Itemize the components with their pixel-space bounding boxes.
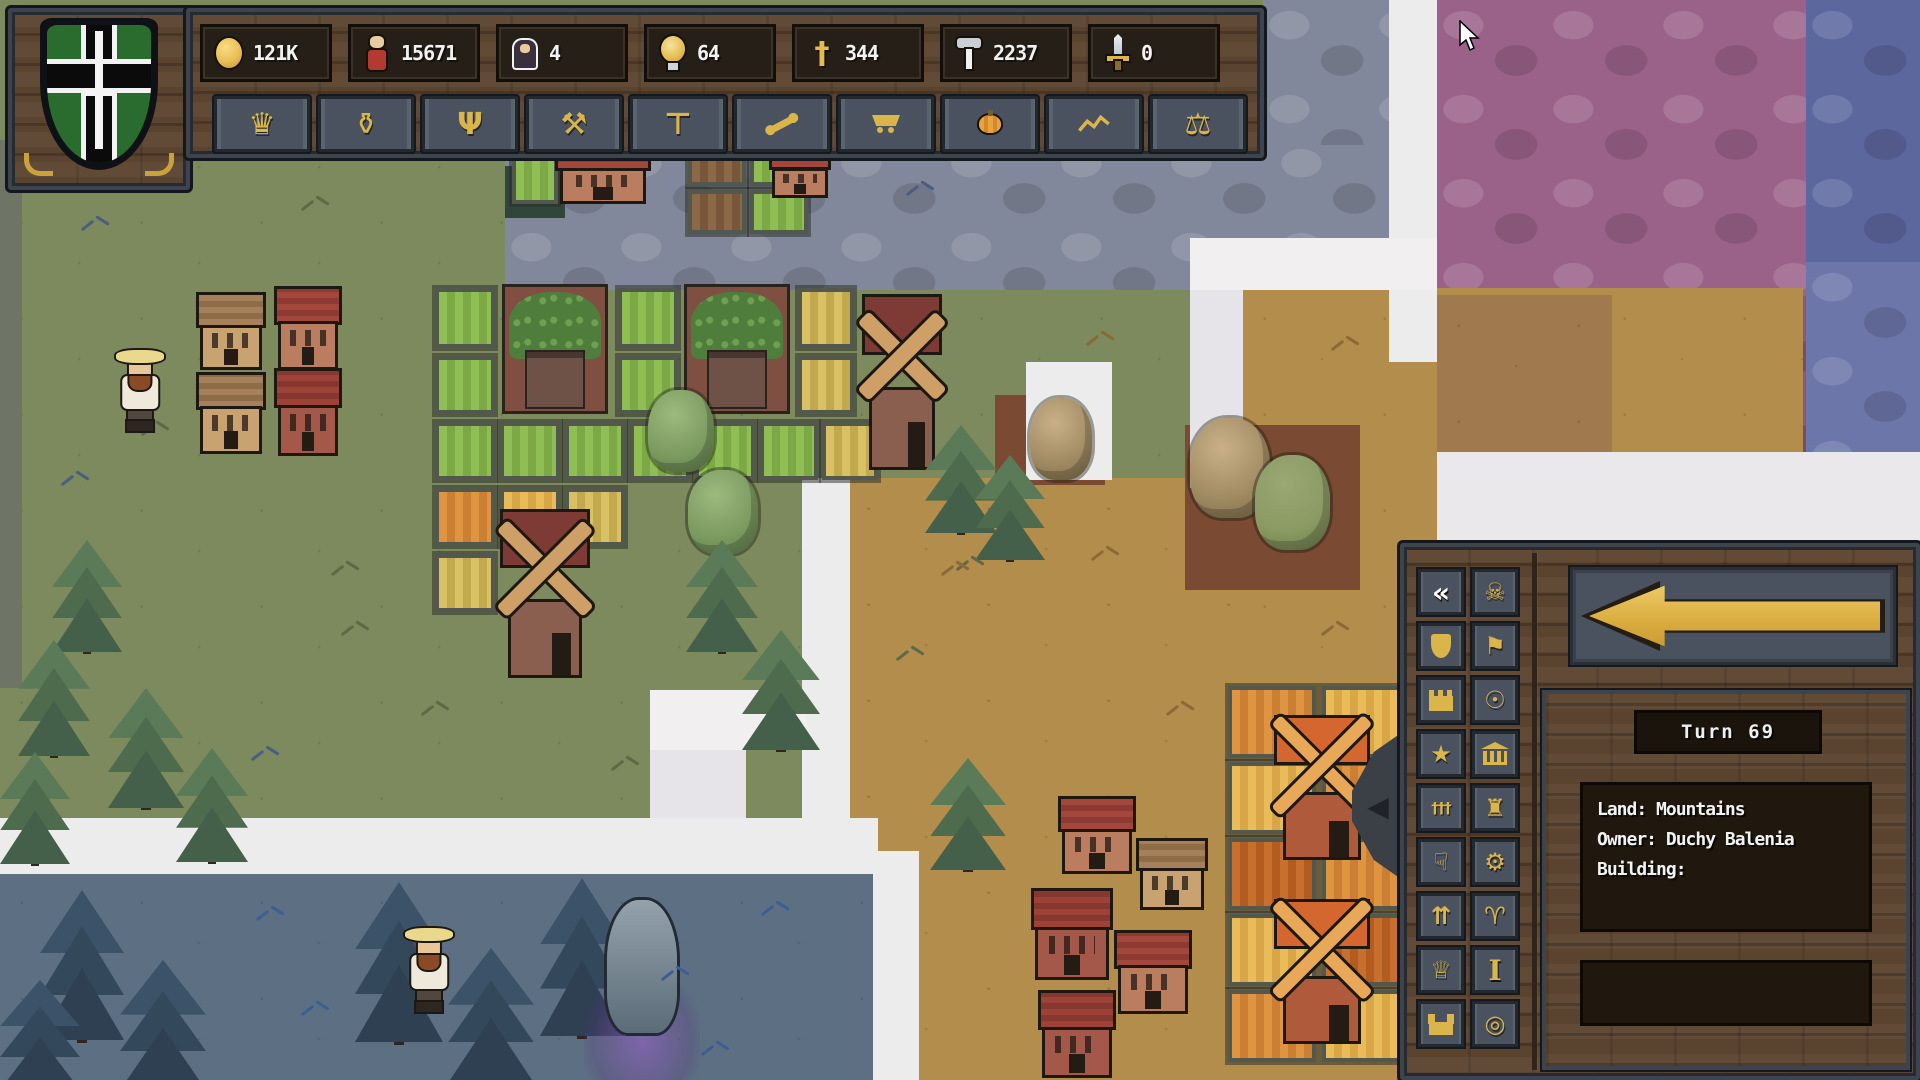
tool-button-graveyard[interactable]: ††† xyxy=(1418,785,1464,831)
plot-sprite-b[interactable] xyxy=(688,190,746,234)
tile-info-secondary-box xyxy=(1580,960,1872,1026)
resource-population: 15671 xyxy=(348,24,480,82)
figure-star-icon: ★ xyxy=(1424,734,1458,774)
temple-icon xyxy=(1478,734,1512,774)
plot-sprite-y[interactable] xyxy=(798,356,854,414)
growth-arrows-icon: ⇈ xyxy=(1424,896,1458,936)
gold-coin-icon xyxy=(213,33,247,73)
tool-button-coin-mark[interactable]: ☉ xyxy=(1472,677,1518,723)
left-arrow-icon xyxy=(1589,583,1880,649)
wall-icon xyxy=(1424,680,1458,720)
tool-button-temple[interactable] xyxy=(1472,731,1518,777)
menu-button-pumpkin[interactable] xyxy=(942,96,1038,152)
resource-row: 121K15671464†34422370 xyxy=(200,24,1220,82)
tool-button-ram[interactable]: ♈ xyxy=(1472,893,1518,939)
tool-button-banner[interactable]: ⚑ xyxy=(1472,623,1518,669)
resource-faith: †344 xyxy=(792,24,924,82)
tuft-sprite-b xyxy=(250,745,280,763)
plot-sprite-g[interactable] xyxy=(500,422,560,480)
side-panel: «☠⚑☉★†††♜☟⚙⇈♈♕I◎ Turn 69 Land: Mountains… xyxy=(1400,543,1920,1080)
tuft-sprite-n xyxy=(660,965,690,983)
pine-sprite-g xyxy=(108,688,184,808)
house-sprite-red3[interactable] xyxy=(1042,990,1112,1078)
house-sprite-red3[interactable] xyxy=(1035,888,1109,980)
menu-button-chart[interactable] xyxy=(1046,96,1142,152)
tool-button-castle[interactable] xyxy=(1418,1001,1464,1047)
pine-sprite-g xyxy=(975,455,1045,560)
mill-sprite-o[interactable] xyxy=(1268,896,1376,1044)
villager-icon xyxy=(361,33,395,73)
tuft-sprite-g xyxy=(340,620,370,638)
resource-ideas: 64 xyxy=(644,24,776,82)
pumpkin-icon xyxy=(973,104,1007,144)
shield-gold-icon xyxy=(1424,626,1458,666)
castle-icon xyxy=(1424,1004,1458,1044)
plot-sprite-o[interactable] xyxy=(435,488,495,546)
tile-info-building: Building: xyxy=(1597,855,1855,885)
plot-sprite-g[interactable] xyxy=(435,288,495,348)
house-sprite-red3[interactable] xyxy=(278,368,338,456)
terrain-blue-stone-right[interactable] xyxy=(1806,262,1920,458)
tile-info-land: Land: Mountains xyxy=(1597,795,1855,825)
sword-icon xyxy=(1101,33,1135,73)
tree-sprite-dry xyxy=(1030,398,1092,480)
terrain-purple-stone[interactable] xyxy=(1437,0,1809,296)
pine-sprite-n xyxy=(120,960,206,1080)
menu-button-row: ♛⚱Ψ⚒⊤⚖ xyxy=(214,96,1246,152)
info-i-icon: I xyxy=(1478,950,1512,990)
tuft-sprite-n xyxy=(300,1000,330,1018)
house-sprite-red[interactable] xyxy=(1118,930,1188,1014)
bone-icon xyxy=(765,104,799,144)
tool-button-crown-keep[interactable]: ♕ xyxy=(1418,947,1464,993)
pine-sprite-g xyxy=(18,640,90,756)
menu-button-crown[interactable]: ♛ xyxy=(214,96,310,152)
candelabra-icon: Ψ xyxy=(453,104,487,144)
resource-clergy-value: 4 xyxy=(549,41,560,65)
resource-labour-value: 2237 xyxy=(993,41,1037,65)
tuft-sprite-t xyxy=(1090,545,1120,563)
sword-guard xyxy=(85,89,113,96)
terrain-tan-steppe-dark[interactable] xyxy=(1437,295,1612,455)
coin-mark-icon: ☉ xyxy=(1478,680,1512,720)
graveyard-icon: ††† xyxy=(1424,788,1458,828)
house-sprite-tan[interactable] xyxy=(200,292,262,370)
banner-icon: ⚑ xyxy=(1478,626,1512,666)
tool-button-skull[interactable]: ☠ xyxy=(1472,569,1518,615)
ram-icon: ♈ xyxy=(1478,896,1512,936)
bulb-icon xyxy=(657,33,691,73)
faction-crest-shield xyxy=(40,18,158,170)
house-sprite-red[interactable] xyxy=(1062,796,1132,874)
pine-sprite-n xyxy=(448,948,534,1080)
mill-sprite-b[interactable] xyxy=(494,506,596,678)
tuft-sprite-n xyxy=(760,900,790,918)
tuft-sprite-t xyxy=(1330,335,1360,353)
hammer-icon xyxy=(953,33,987,73)
tuft-sprite-g xyxy=(895,645,925,663)
pickaxe-icon: ⚒ xyxy=(557,104,591,144)
turn-counter: Turn 69 xyxy=(1634,710,1822,754)
tool-button-shield-gold[interactable] xyxy=(1418,623,1464,669)
plot-sprite-y[interactable] xyxy=(798,288,854,348)
tool-button-wall[interactable] xyxy=(1418,677,1464,723)
skull-icon: ☠ xyxy=(1478,572,1512,612)
pine-sprite-g xyxy=(0,752,70,864)
trophy-icon: ⚱ xyxy=(349,104,383,144)
tile-info-box: Land: Mountains Owner: Duchy Balenia Bui… xyxy=(1580,782,1872,932)
terrain-fog-10[interactable] xyxy=(873,851,919,1080)
top-resource-bar: 121K15671464†34422370 ♛⚱Ψ⚒⊤⚖ xyxy=(186,8,1264,158)
tree-sprite-g xyxy=(648,390,714,472)
tuft-sprite-b xyxy=(80,215,110,233)
plot-sprite-g[interactable] xyxy=(565,422,625,480)
tuft-sprite-b xyxy=(60,470,90,488)
resource-labour: 2237 xyxy=(940,24,1072,82)
token-circle-icon: ◎ xyxy=(1478,1004,1512,1044)
gavel-icon: ⊤ xyxy=(661,104,695,144)
pine-sprite-n xyxy=(0,980,80,1080)
menu-button-bone[interactable] xyxy=(734,96,830,152)
game-screen: 121K15671464†34422370 ♛⚱Ψ⚒⊤⚖ ◀ «☠⚑☉★†††♜… xyxy=(0,0,1920,1080)
shield-icon xyxy=(47,25,151,163)
resource-clergy: 4 xyxy=(496,24,628,82)
tuft-sprite-t xyxy=(1165,700,1195,718)
pine-sprite-g xyxy=(176,748,248,862)
tool-button-grid: «☠⚑☉★†††♜☟⚙⇈♈♕I◎ xyxy=(1418,569,1518,1047)
tree-sprite-dry2 xyxy=(1255,455,1330,550)
plot-sprite-g[interactable] xyxy=(618,288,678,348)
menu-button-pickaxe[interactable]: ⚒ xyxy=(526,96,622,152)
gear-icon: ⚙ xyxy=(1478,842,1512,882)
tuft-sprite-g xyxy=(300,195,330,213)
plot-sprite-y[interactable] xyxy=(435,554,495,612)
terrain-west-edge-shadow[interactable] xyxy=(0,140,22,688)
menu-button-candelabra[interactable]: Ψ xyxy=(422,96,518,152)
tuft-sprite-g xyxy=(330,560,360,578)
gold-flourish-left-icon xyxy=(24,153,53,176)
pine-sprite-g xyxy=(930,758,1006,870)
resource-military: 0 xyxy=(1088,24,1220,82)
pine-sprite-g xyxy=(52,540,122,652)
tuft-sprite-t xyxy=(1085,330,1115,348)
tool-button-token-circle[interactable]: ◎ xyxy=(1472,1001,1518,1047)
tool-button-thumbs-down[interactable]: ☟ xyxy=(1418,839,1464,885)
terrain-fog-8[interactable] xyxy=(0,818,878,874)
crown-icon: ♛ xyxy=(245,104,279,144)
menu-button-scales[interactable]: ⚖ xyxy=(1150,96,1246,152)
tile-info-frame: Turn 69 Land: Mountains Owner: Duchy Bal… xyxy=(1542,690,1910,1070)
hop-sprite[interactable] xyxy=(502,284,608,414)
tool-button-figure-star[interactable]: ★ xyxy=(1418,731,1464,777)
monk-icon xyxy=(509,33,543,73)
plot-sprite-g[interactable] xyxy=(435,422,495,480)
pine-sprite-g xyxy=(742,630,820,750)
menu-button-trophy[interactable]: ⚱ xyxy=(318,96,414,152)
resource-faith-value: 344 xyxy=(845,41,878,65)
tuft-sprite-t xyxy=(1320,620,1350,638)
tuft-sprite-g xyxy=(420,700,450,718)
tuft-sprite-b xyxy=(905,180,935,198)
resource-ideas-value: 64 xyxy=(697,41,719,65)
tool-button-tower[interactable]: ♜ xyxy=(1472,785,1518,831)
house-sprite-tan[interactable] xyxy=(200,372,262,454)
tile-info-owner: Owner: Duchy Balenia xyxy=(1597,825,1855,855)
chart-icon xyxy=(1077,104,1111,144)
resource-population-value: 15671 xyxy=(401,41,456,65)
tuft-sprite-n xyxy=(255,905,285,923)
crown-keep-icon: ♕ xyxy=(1424,950,1458,990)
villager-sprite[interactable] xyxy=(405,928,453,1024)
tower-icon: ♜ xyxy=(1478,788,1512,828)
plot-sprite-g[interactable] xyxy=(760,422,818,480)
gold-flourish-right-icon xyxy=(145,153,174,176)
terrain-fog-1[interactable] xyxy=(1389,0,1437,362)
house-sprite-tan[interactable] xyxy=(1140,838,1204,910)
hop-sprite[interactable] xyxy=(684,284,790,414)
collapse-arrows-icon: « xyxy=(1424,572,1458,612)
tuft-sprite-t xyxy=(940,560,970,578)
thumbs-down-icon: ☟ xyxy=(1424,842,1458,882)
tuft-sprite-n xyxy=(700,1040,730,1058)
panel-divider xyxy=(1532,553,1537,1070)
menu-button-gavel[interactable]: ⊤ xyxy=(630,96,726,152)
terrain-stone-mountains-ne[interactable] xyxy=(1263,0,1389,145)
house-sprite-red[interactable] xyxy=(278,286,338,370)
terrain-fog-2[interactable] xyxy=(1190,238,1437,290)
resource-gold: 121K xyxy=(200,24,332,82)
menu-button-cart[interactable] xyxy=(838,96,934,152)
shrine-sprite[interactable] xyxy=(592,900,692,1080)
cross-icon: † xyxy=(805,33,839,73)
terrain-fog-9[interactable] xyxy=(1437,452,1920,544)
tuft-sprite-g xyxy=(610,755,640,773)
terrain-blue-stone-corner[interactable] xyxy=(1806,0,1920,262)
scales-icon: ⚖ xyxy=(1181,104,1215,144)
back-arrow-button[interactable] xyxy=(1570,567,1896,665)
tool-button-info-i[interactable]: I xyxy=(1472,947,1518,993)
plot-sprite-g[interactable] xyxy=(435,356,495,414)
cart-icon xyxy=(869,104,903,144)
faction-crest-panel[interactable] xyxy=(8,8,190,190)
tool-button-gear[interactable]: ⚙ xyxy=(1472,839,1518,885)
resource-military-value: 0 xyxy=(1141,41,1152,65)
tool-button-collapse-arrows[interactable]: « xyxy=(1418,569,1464,615)
resource-gold-value: 121K xyxy=(253,41,297,65)
tool-button-growth-arrows[interactable]: ⇈ xyxy=(1418,893,1464,939)
